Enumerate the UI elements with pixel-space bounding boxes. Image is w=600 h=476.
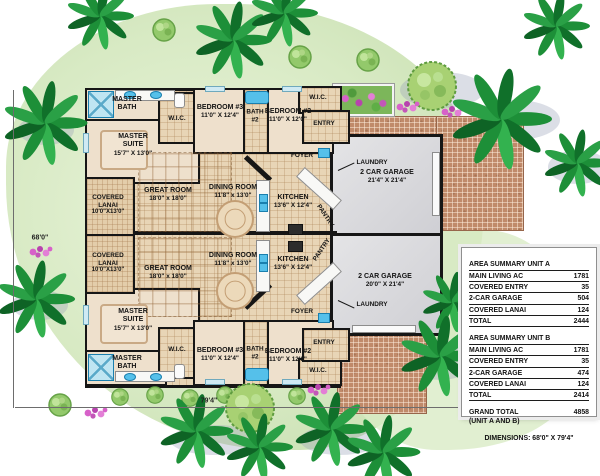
table-row: COVERED LANAI124 bbox=[469, 305, 589, 316]
kitchen-sink-b2 bbox=[259, 263, 268, 272]
shadow bbox=[170, 425, 260, 455]
kitchen-sink-a2 bbox=[259, 203, 268, 212]
garage-door-b bbox=[352, 325, 416, 333]
label-wic-bed2-a: W.I.C. bbox=[309, 94, 326, 102]
bush-icon bbox=[49, 394, 71, 416]
height-dimension-label: 68'0" bbox=[32, 235, 49, 242]
toilet-a bbox=[174, 93, 185, 108]
grand-total-sub: (UNIT A AND B) bbox=[469, 418, 589, 427]
sink-b2 bbox=[150, 373, 162, 381]
dimensions-line: DIMENSIONS: 68'0" X 79'4" bbox=[469, 435, 589, 442]
window bbox=[282, 379, 302, 385]
stove-b bbox=[288, 241, 303, 252]
kitchen-sink-b1 bbox=[259, 254, 268, 263]
window bbox=[83, 133, 89, 153]
table-row: 2-CAR GARAGE474 bbox=[469, 368, 589, 379]
table-row: COVERED LANAI124 bbox=[469, 379, 589, 390]
label-entry-b: ENTRY bbox=[313, 339, 334, 347]
driveway-unit-b bbox=[337, 331, 427, 414]
dining-table-b bbox=[216, 272, 254, 310]
label-great-b: GREAT ROOM18'0" x 18'0" bbox=[144, 265, 192, 281]
window bbox=[205, 379, 225, 385]
label-foyer-b: FOYER bbox=[291, 308, 313, 316]
label-dining-a: DINING ROOM11'8" x 13'0" bbox=[209, 184, 257, 200]
label-master-suite-a: MASTERSUITE15'7" X 13'0" bbox=[114, 133, 152, 157]
label-laundry-a: LAUNDRY bbox=[356, 159, 387, 167]
sink-a2 bbox=[150, 91, 162, 99]
label-entry-a: ENTRY bbox=[313, 120, 334, 128]
label-wic-master-b: W.I.C. bbox=[168, 346, 185, 354]
label-lanai-a: COVEREDLANAI10'0"X13'0" bbox=[92, 194, 125, 216]
foyer-sink-a bbox=[318, 148, 330, 158]
label-kitchen-b: KITCHEN13'6" X 12'4" bbox=[274, 256, 312, 272]
label-bath2-a: BATH#2 bbox=[246, 108, 263, 123]
label-garage-b: 2 CAR GARAGE20'0" X 21'4" bbox=[358, 273, 412, 289]
label-master-suite-b: MASTERSUITE15'7" X 13'0" bbox=[114, 308, 152, 332]
stove-a bbox=[288, 224, 303, 235]
label-dining-b: DINING ROOM11'8" x 13'0" bbox=[209, 252, 257, 268]
dining-table-a bbox=[216, 200, 254, 238]
window bbox=[282, 86, 302, 92]
table-row: COVERED ENTRY35 bbox=[469, 356, 589, 367]
dimension-line-height bbox=[13, 90, 14, 408]
shadow bbox=[548, 150, 600, 184]
flowers-icon bbox=[85, 407, 108, 419]
table-row-total-a: TOTAL2444 bbox=[469, 316, 589, 327]
label-great-a: GREAT ROOM18'0" x 18'0" bbox=[144, 187, 192, 203]
shower-b bbox=[88, 354, 114, 381]
garage-door-a bbox=[432, 152, 440, 216]
garage-unit-a bbox=[330, 134, 443, 239]
sink-b1 bbox=[124, 373, 136, 381]
window bbox=[83, 305, 89, 325]
shadow bbox=[300, 425, 380, 455]
label-lanai-b: COVEREDLANAI10'0"X13'0" bbox=[92, 252, 125, 274]
window bbox=[205, 86, 225, 92]
label-bedroom3-b: BEDROOM #311'0" X 12'4" bbox=[197, 347, 243, 363]
label-bedroom2-a: BEDROOM #211'0" X 12'0" bbox=[265, 108, 311, 124]
area-summary-table: AREA SUMMARY UNIT A MAIN LIVING AC1781 C… bbox=[461, 247, 597, 417]
label-bedroom2-b: BEDROOM #211'0" X 12'0" bbox=[265, 348, 311, 364]
area-summary-title-b: AREA SUMMARY UNIT B bbox=[469, 334, 589, 345]
grand-total-row: GRAND TOTAL4858 bbox=[469, 408, 589, 417]
label-bedroom3-a: BEDROOM #311'0" X 12'4" bbox=[197, 104, 243, 120]
label-kitchen-a: KITCHEN13'6" X 12'4" bbox=[274, 194, 312, 210]
shadow bbox=[400, 72, 484, 108]
table-row: MAIN LIVING AC1781 bbox=[469, 271, 589, 282]
label-laundry-b: LAUNDRY bbox=[356, 301, 387, 309]
palm-tree-icon bbox=[522, 0, 590, 60]
shadow bbox=[18, 115, 74, 145]
tub-bath2-b bbox=[245, 368, 269, 381]
label-wic-bed2-b: W.I.C. bbox=[309, 367, 326, 375]
label-wic-master-a: W.I.C. bbox=[168, 115, 185, 123]
table-row: COVERED ENTRY35 bbox=[469, 282, 589, 293]
tub-bath2-a bbox=[245, 91, 269, 104]
label-master-bath-a: MASTERBATH bbox=[112, 96, 142, 113]
foyer-sink-b bbox=[318, 313, 330, 323]
label-foyer-a: FOYER bbox=[291, 152, 313, 160]
table-row: MAIN LIVING AC1781 bbox=[469, 345, 589, 356]
table-row: 2-CAR GARAGE504 bbox=[469, 293, 589, 304]
width-dimension-label: 79'4" bbox=[201, 398, 218, 405]
kitchen-sink-a1 bbox=[259, 194, 268, 203]
toilet-b bbox=[174, 364, 185, 379]
table-row-total-b: TOTAL2414 bbox=[469, 390, 589, 401]
driveway-unit-a bbox=[436, 116, 524, 231]
label-garage-a: 2 CAR GARAGE21'4" X 21'4" bbox=[360, 169, 414, 185]
label-master-bath-b: MASTERBATH bbox=[112, 355, 142, 372]
shadow bbox=[12, 290, 68, 320]
shower-a bbox=[88, 91, 114, 118]
area-summary-title-a: AREA SUMMARY UNIT A bbox=[469, 260, 589, 271]
label-bath2-b: BATH#2 bbox=[246, 345, 263, 360]
floor-plan-scene: MASTERBATH MASTERSUITE15'7" X 13'0" W.I.… bbox=[0, 0, 600, 476]
